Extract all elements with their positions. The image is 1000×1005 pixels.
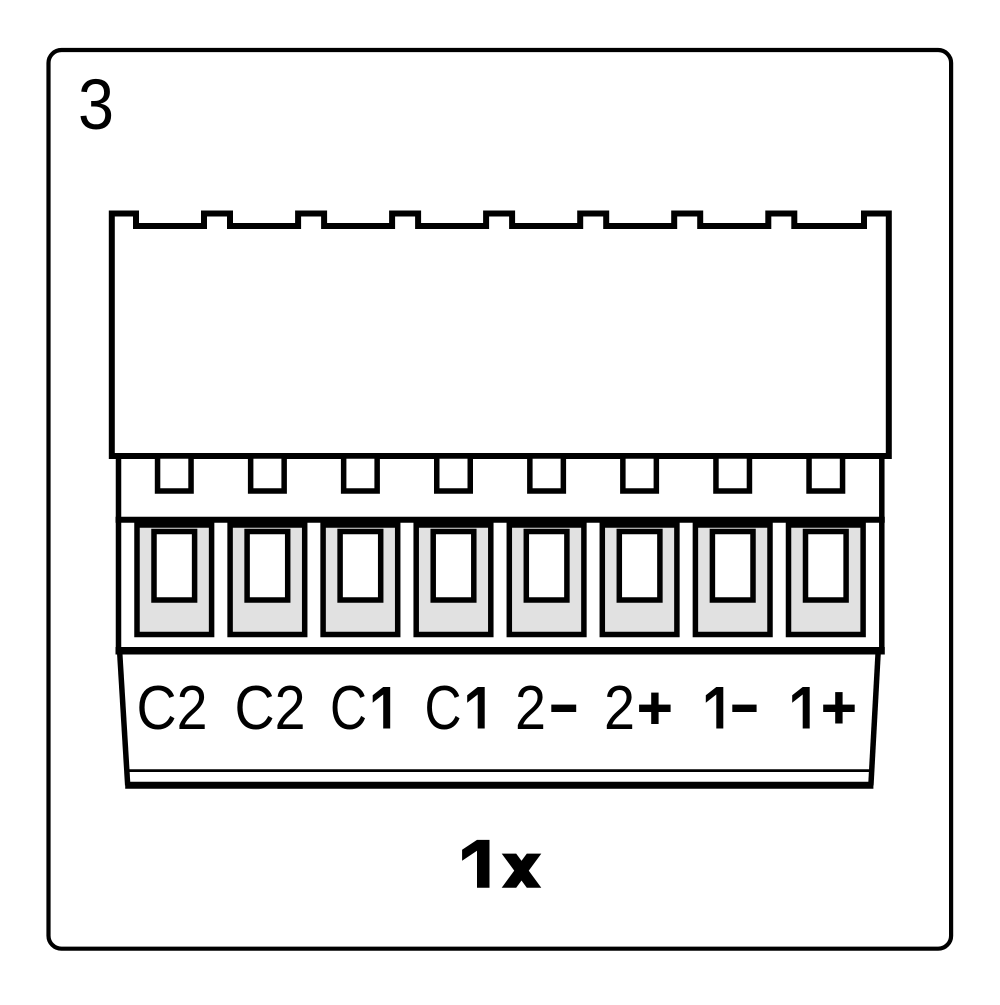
svg-text:C2: C2 bbox=[137, 674, 208, 743]
svg-text:C: C bbox=[425, 674, 462, 743]
svg-text:C: C bbox=[330, 674, 367, 743]
svg-text:3: 3 bbox=[78, 66, 114, 145]
svg-text:2: 2 bbox=[604, 674, 635, 743]
svg-text:C2: C2 bbox=[235, 674, 306, 743]
svg-text:2: 2 bbox=[515, 674, 546, 743]
